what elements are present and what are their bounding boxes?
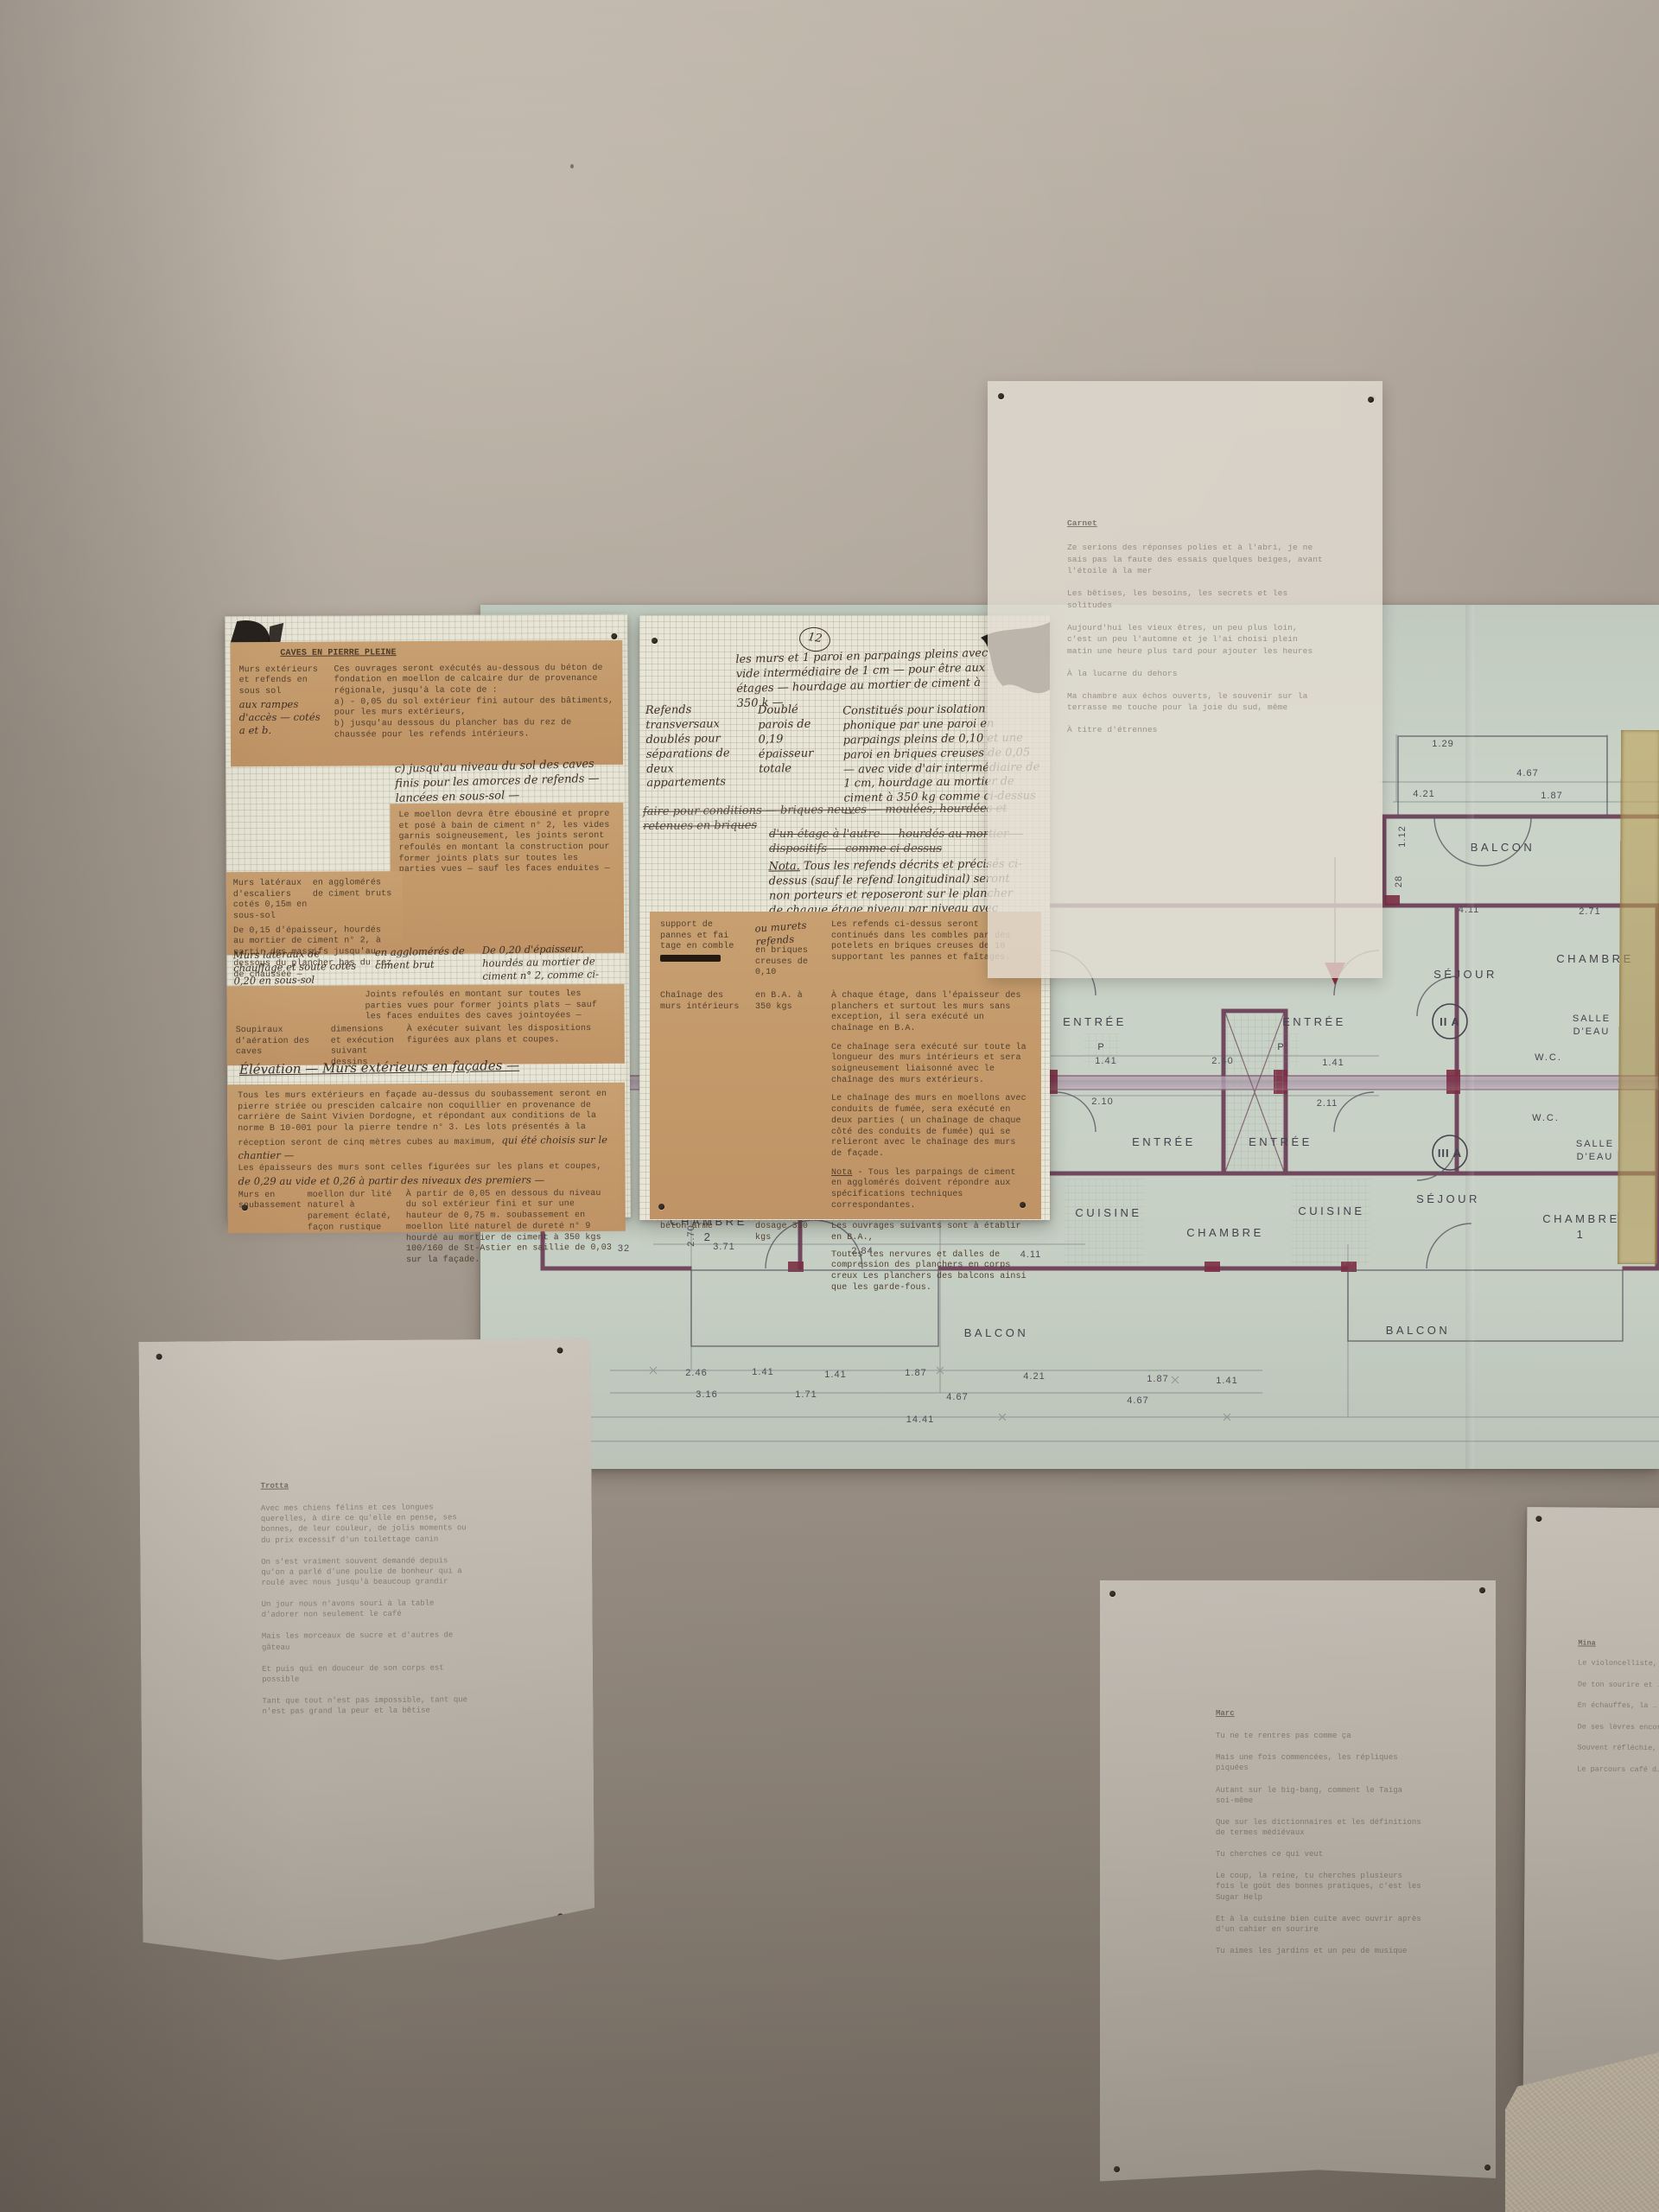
poem-left-stanza: Un jour nous n'avons souri à la table d'… [262,1598,469,1620]
dim: 4.67 [946,1392,968,1402]
poem-middle-stanza: Que sur les dictionnaires et les définit… [1216,1817,1423,1838]
pin [242,1205,248,1211]
poem-sheet-right: Mina Le violoncelliste, b… De ton sourir… [1523,1507,1659,2108]
spec-left-block-murs-lateraux: Murs latéraux d'escaliers cotés 0,15m en… [226,871,403,955]
room-label-salle-a: SALLE [1573,1014,1611,1024]
spec-left-r4-text: À partir de 0,05 en dessous du niveau du… [406,1189,615,1267]
dim: 1.41 [1095,1056,1116,1066]
poem-right-stanza: De ses lèvres encore … [1578,1722,1659,1733]
dim: 3.16 [696,1389,717,1400]
pin [658,1204,664,1210]
dim: 2.40 [1211,1056,1233,1066]
pin [164,1948,170,1954]
poem-middle-stanza: Tu ne te rentres pas comme ça [1216,1731,1423,1741]
poem-middle-stanza: Tu cherches ce qui veut [1216,1849,1423,1859]
unit-label-3a: III A [1438,1147,1462,1160]
pin [611,633,617,639]
pin [1020,1202,1026,1208]
room-label-balcon-bl: BALCON [964,1326,1028,1339]
spec-left-block-joints: Joints refoulés en montant sur toutes le… [226,984,624,1065]
tracing-p1: Ze serions des réponses polies et à l'ab… [1067,542,1326,577]
poem-sheet-left: Trotta Avec mes chiens félins et ces lon… [138,1338,594,1967]
spec-left-r1-hand: aux rampes d'accès — cotés a et b. [239,697,326,736]
spec-mid-r2-nota: - Tous les parpaings de ciment en agglom… [831,1168,1016,1211]
spec-left-r1-text: Ces ouvrages seront exécutés au-dessous … [334,664,602,696]
poem-left-stanza: Et puis qui en douceur de son corps est … [262,1662,469,1685]
kitchen-floor-hatch-right [1291,1179,1370,1265]
room-label-entree-1: ENTRÉE [1063,1015,1127,1028]
dim: 4.21 [1413,789,1434,799]
tracing-p2: Les bêtises, les besoins, les secrets et… [1067,588,1326,612]
room-label-balcon-top: BALCON [1471,841,1535,854]
spec-mid-r2-p1: À chaque étage, dans l'épaisseur des pla… [831,991,1031,1035]
tracing-title: Carnet [1067,518,1326,530]
spec-mid-r2-p3: Le chaînage des murs en moellons avec co… [831,1094,1031,1160]
dim: 32 [618,1243,630,1254]
dim: 2.11 [1317,1098,1338,1109]
dim: 1.71 [795,1389,817,1400]
pin [1484,2164,1491,2171]
pin [652,638,658,644]
scribbled-out-word [660,955,721,962]
dim: 1.41 [1216,1376,1237,1386]
spec-left-block-moellon: Le moellon devra être ébousiné et propre… [390,803,624,954]
dim: 1.29 [1432,739,1453,749]
poem-middle-stanza: Autant sur le big-bang, comment le Taïga… [1216,1785,1423,1806]
poem-sheet-middle: Marc Tu ne te rentres pas comme ça Mais … [1100,1580,1496,2184]
room-label-balcon-br: BALCON [1386,1324,1450,1337]
dim: 1.87 [1541,791,1562,801]
spec-mid-r3-label: béton armé [660,1222,747,1294]
spec-left-joints: Joints refoulés en montant sur toutes le… [365,989,615,1024]
spec-mid-r2-mid: en B.A. à 350 kgs [755,991,823,1211]
poem-right-stanza: Le parcours café d… [1577,1764,1659,1776]
dim: 1.87 [905,1368,926,1378]
spec-left-r4-label: Murs en soubassement [238,1191,299,1268]
spec-left-block-facades: Tous les murs extérieurs en façade au-de… [227,1083,626,1233]
dim: 4.67 [1127,1395,1148,1406]
poem-right-title: Mina [1578,1639,1659,1650]
spec-left-fac-p2: Les épaisseurs des murs sont celles figu… [238,1162,614,1175]
room-label-entree-3: ENTRÉE [1132,1135,1196,1148]
pin [1368,397,1374,403]
dim: 1.87 [1147,1374,1168,1384]
dim: 4.67 [1516,768,1538,779]
spec-left-fac-hand2: de 0,29 au vide et 0,26 à partir des niv… [238,1173,615,1188]
room-label-deau-a: D'EAU [1573,1027,1611,1037]
spec-left-r1-b: b) jusqu'au dessous du plancher bas du r… [334,718,614,741]
spec-left-hand-heading: Élévation — Murs extérieurs en façades — [239,1058,520,1079]
notes-page-number: 12 [798,626,832,654]
poem-left-stanza: Avec mes chiens félins et ces longues qu… [261,1502,468,1545]
spec-mid-r2-p2: Ce chaînage sera exécuté sur toute la lo… [831,1043,1031,1087]
spec-left-block-1: CAVES EN PIERRE PLEINE Murs extérieurs e… [230,640,623,766]
poem-left-stanza: On s'est vraiment souvent demandé depuis… [261,1555,468,1588]
dim: 1.12 [1397,825,1408,847]
pin [156,1354,162,1360]
tape-strip [1618,730,1659,1264]
spec-mid-r3-p1: Les ouvrages suivants sont à établir en … [831,1222,1031,1243]
spec-left-r1-label: Murs extérieurs et refends en sous sol [238,664,318,696]
poem-left-stanza: Tant que tout n'est pas impossible, tant… [262,1694,469,1717]
spec-left-hand-c: c) jusqu'au niveau du sol des caves fini… [395,757,619,806]
wall-speck [570,164,574,168]
dim: 1.41 [1322,1058,1344,1068]
notes-p1: les murs et 1 paroi en parpaings pleins … [735,646,1005,712]
spec-mid-nota-label: Nota [831,1168,852,1178]
spec-mid-r1-hand: ou murets refends [754,918,823,948]
room-label-sejour-b: SÉJOUR [1416,1192,1480,1205]
dim: 14.41 [906,1414,935,1425]
room-label-chambre-1: CHAMBRE [1542,1212,1620,1225]
dim: 2.10 [1091,1096,1113,1107]
pin [998,393,1004,399]
poem-middle-stanza: Tu aimes les jardins et un peu de musiqu… [1216,1946,1423,1956]
room-label-cuisine-b: CUISINE [1298,1205,1364,1217]
dim: 1.41 [752,1367,773,1377]
poem-middle-stanza: Le coup, la reine, tu cherches plusieurs… [1216,1871,1423,1902]
pin [557,1913,563,1919]
closet-label-p-left: P [1097,1042,1105,1052]
poem-middle-title: Marc [1216,1708,1423,1719]
dim: 28 [1394,875,1404,887]
spec-mid-r1-label: support de pannes et fai tage en comble [660,920,734,951]
dim: 4.21 [1023,1371,1045,1382]
kitchen-floor-hatch-left [1065,1179,1144,1265]
tracing-p3: Aujourd'hui les vieux êtres, un peu plus… [1067,622,1326,658]
unit-label-2a: II A [1440,1015,1460,1028]
poem-right-stanza: Souvent réfléchie, … [1577,1744,1659,1755]
room-label-entree-2: ENTRÉE [1282,1015,1346,1028]
spec-mid-r3-p2: Toutes les nervures et dalles de compres… [831,1250,1031,1294]
spec-left-moellon: Le moellon devra être ébousiné et propre… [398,810,609,875]
poem-right-stanza: De ton sourire et … tous les jours [1578,1680,1659,1691]
spec-mid-r1-mid: en briques creuses de 0,10 [755,946,808,977]
dim: 1.41 [824,1370,846,1380]
room-label-entree-4: ENTRÉE [1249,1135,1313,1148]
pin [1479,1587,1485,1593]
room-label-sejour-a: SÉJOUR [1433,968,1497,981]
dim: 2.71 [1579,906,1600,917]
room-label-chambre-mid: CHAMBRE [1186,1226,1264,1239]
poem-left-stanza: Mais les morceaux de sucre et d'autres d… [262,1630,469,1653]
room-label-salle-b: SALLE [1576,1139,1614,1149]
spec-left-r1-a: a) - 0,05 du sol extérieur fini autour d… [334,696,614,720]
room-label-wc-b: W.C. [1532,1113,1560,1123]
poem-right-stanza: Le violoncelliste, b… [1578,1659,1659,1670]
spec-left-r2-label: Murs latéraux d'escaliers cotés 0,15m en… [233,879,308,923]
poem-left-title: Trotta [261,1479,468,1491]
spec-left-r4-mid: moellon dur lité naturel à parement écla… [308,1190,397,1267]
dim: 2.46 [685,1368,707,1378]
spec-left-r2-mid: en agglomérés de ciment bruts [313,878,396,922]
dim: 4.11 [1459,905,1480,915]
spec-left-title: CAVES EN PIERRE PLEINE [280,647,613,660]
poem-right-stanza: En échauffes, la … retrouvez le … [1578,1701,1659,1713]
tracing-sheet: Carnet Ze serions des réponses polies et… [988,381,1382,978]
pin [1535,1516,1541,1522]
closet-label-p-right: P [1277,1042,1285,1052]
pin [1109,1591,1116,1597]
spec-mid-r3-mid: dosage 350 kgs [755,1222,823,1294]
spec-sheet-left: CAVES EN PIERRE PLEINE Murs extérieurs e… [225,614,631,1219]
room-label-chambre-1-no: 1 [1577,1228,1586,1241]
exhibition-wall-photo: BALCON SÉJOUR CHAMBRE SALLE D'EAU W.C. W… [0,0,1659,2212]
notes-col-label: Refends transversaux doublés pour sépara… [645,702,749,821]
poem-middle-stanza: Et à la cuisine bien cuite avec ouvrir a… [1216,1914,1423,1935]
spec-sheet-middle: support de pannes et fai tage en comble … [650,912,1041,1219]
pin [557,1347,563,1353]
tracing-p5: Ma chambre aux échos ouverts, le souveni… [1067,690,1326,715]
room-label-cuisine-a: CUISINE [1075,1206,1141,1219]
tracing-p6: À titre d'étrennes [1067,724,1326,736]
room-label-deau-b: D'EAU [1577,1152,1614,1162]
pin [1114,2166,1120,2172]
tracing-p4: À la lucarne du dehors [1067,668,1326,680]
notes-nota-label: Nota. [768,860,799,873]
poem-middle-stanza: Mais une fois commencées, les répliques … [1216,1752,1423,1773]
room-label-wc-a: W.C. [1535,1052,1562,1063]
spec-mid-r2-label: Chaînage des murs intérieurs [660,991,747,1211]
